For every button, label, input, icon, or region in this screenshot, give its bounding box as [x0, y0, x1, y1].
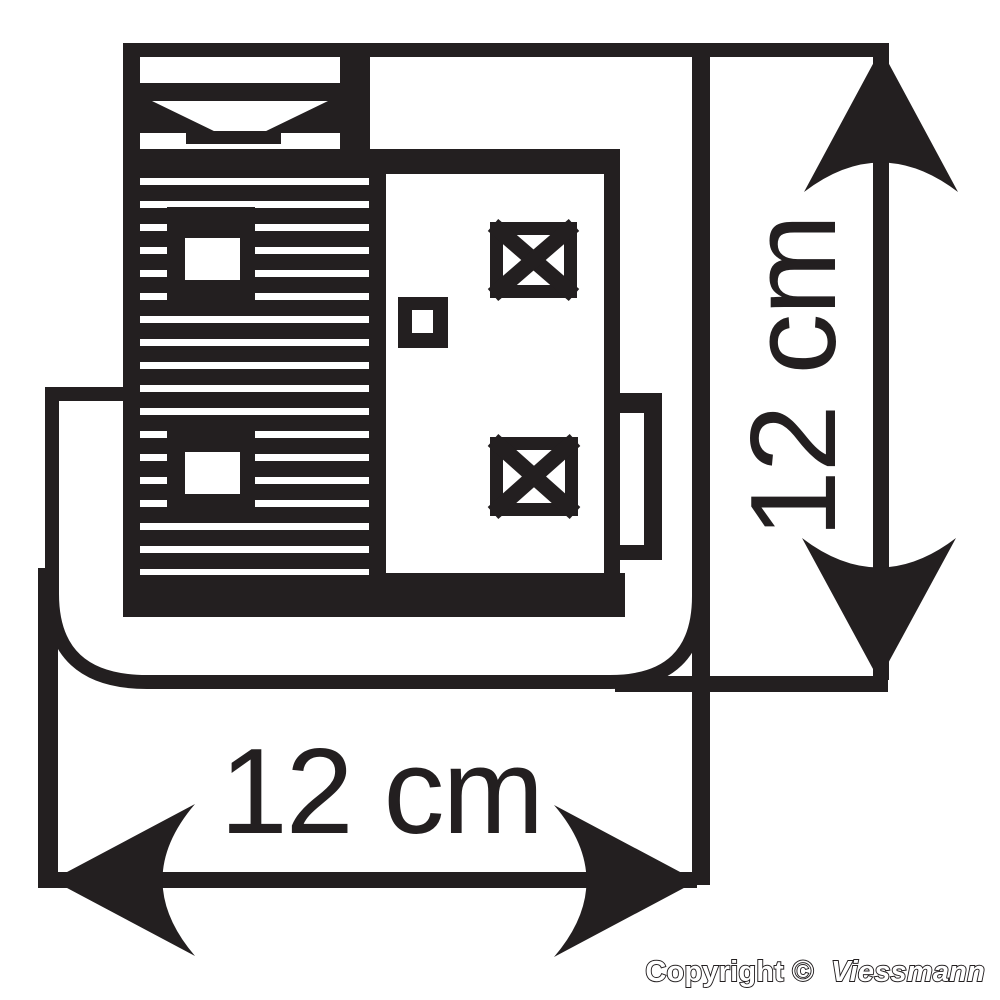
width-left-extension-line [38, 568, 58, 888]
copyright-brand-viessmann: Viessmann [831, 956, 985, 988]
small-post-opening [412, 310, 433, 333]
lower-crossed-post-marker [490, 437, 578, 516]
hall-left-wall [369, 149, 386, 573]
hall-right-wall [604, 149, 620, 573]
small-post-marker [398, 297, 448, 348]
model-building-footprint-diagram: 12 cm 12 cm Copyright © Viessmann [0, 0, 1000, 1000]
bottom-wall [123, 573, 625, 617]
annex-bottom-wall [606, 545, 662, 560]
height-dimension-label: 12 cm [725, 216, 861, 538]
height-bottom-extension-line [615, 676, 888, 692]
upper-crossed-post-marker [490, 222, 577, 298]
upper-window-opening [185, 238, 240, 280]
roof-vent-left-slope [128, 101, 218, 133]
right-wall-and-extension-line [692, 43, 710, 885]
lower-window-opening [185, 452, 240, 494]
roof-vent-bottom-bar [186, 131, 281, 144]
roof-vent [128, 83, 352, 144]
annex-right-wall [644, 393, 662, 560]
roof-vent-right-slope [262, 101, 352, 133]
hatched-wing [140, 149, 386, 575]
top-divider-wall [340, 43, 370, 150]
copyright-watermark: Copyright © Viessmann [645, 956, 985, 988]
top-wall-and-extension-line [123, 43, 889, 57]
roof-vent-top-bar [140, 83, 340, 101]
width-dimension: 12 cm [38, 568, 697, 957]
dimension-drawing-canvas: 12 cm 12 cm Copyright © Viessmann [0, 0, 1000, 1000]
width-dimension-label: 12 cm [220, 723, 542, 859]
copyright-prefix: Copyright © [645, 956, 814, 988]
